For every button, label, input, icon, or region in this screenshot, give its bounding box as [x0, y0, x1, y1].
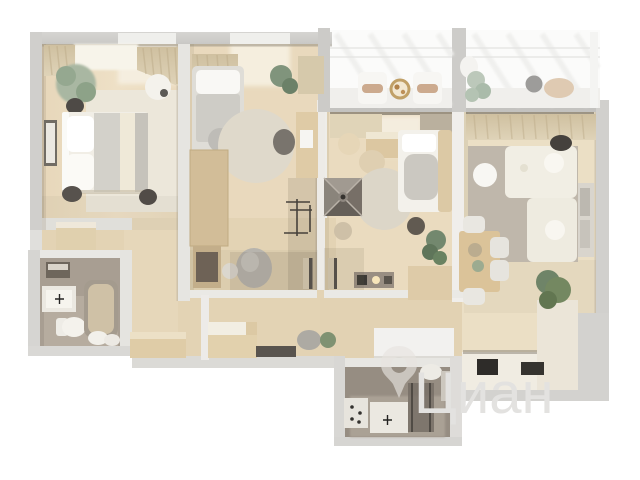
- svg-text:Циан: Циан: [414, 361, 554, 426]
